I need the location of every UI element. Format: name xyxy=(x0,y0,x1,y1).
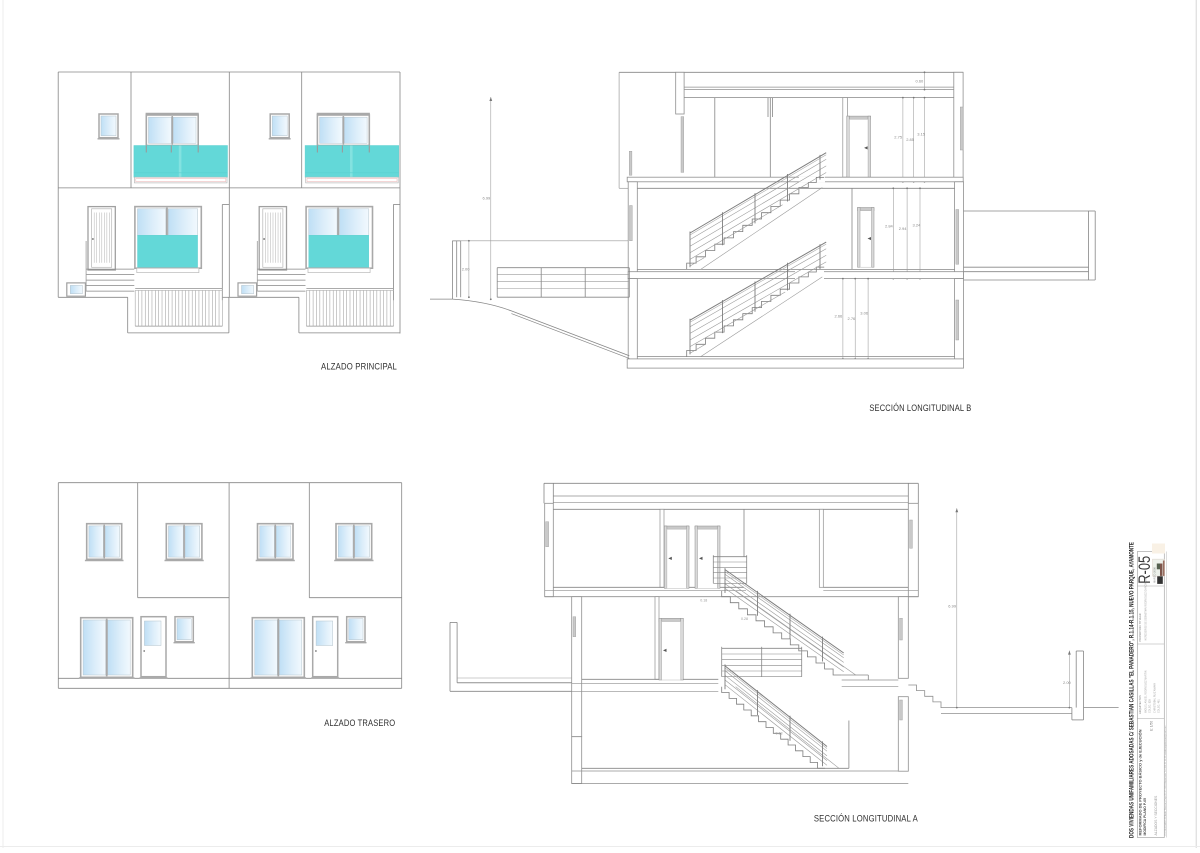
svg-text:2.75: 2.75 xyxy=(894,135,903,140)
svg-text:C/ COLEGIADO 28 Avda. Ramo: C/ COLEGIADO 28 Avda. Ramon y Cajal 23 1… xyxy=(1164,725,1167,835)
svg-text:2.84: 2.84 xyxy=(885,224,894,229)
svg-text:SECCIÓN LONGITUDINAL A: SECCIÓN LONGITUDINAL A xyxy=(814,814,918,824)
svg-text:MODIFICA PLANO P-05: MODIFICA PLANO P-05 xyxy=(1143,798,1147,836)
svg-text:2.00: 2.00 xyxy=(1063,680,1072,685)
svg-text:2.94: 2.94 xyxy=(899,226,908,231)
svg-text:DOS VIVIENDAS UNIFAMILIARES AD: DOS VIVIENDAS UNIFAMILIARES ADOSADAS C/ … xyxy=(1130,542,1136,838)
svg-text:2.00: 2.00 xyxy=(462,267,471,272)
svg-text:6.99: 6.99 xyxy=(948,604,957,609)
svg-text:PROMOTOR / TITULAR: PROMOTOR / TITULAR xyxy=(1138,613,1142,641)
svg-text:0.60: 0.60 xyxy=(916,79,925,84)
svg-text:2.76: 2.76 xyxy=(848,316,857,321)
svg-text:REFORMADO DE PROYECTO BÁSICO y: REFORMADO DE PROYECTO BÁSICO y de EJECUC… xyxy=(1138,729,1143,836)
svg-text:ALZADO PRINCIPAL: ALZADO PRINCIPAL xyxy=(321,362,397,372)
svg-text:CHRISTOBAL RUIZ AMAYA: CHRISTOBAL RUIZ AMAYA xyxy=(1154,683,1157,713)
svg-text:2.66: 2.66 xyxy=(835,314,844,319)
svg-text:COLEG. 528: COLEG. 528 xyxy=(1149,699,1152,713)
svg-text:MARZO 2006: MARZO 2006 xyxy=(1153,567,1157,583)
svg-text:3.24: 3.24 xyxy=(913,223,922,228)
svg-text:0.28: 0.28 xyxy=(741,617,748,621)
svg-text:3.06: 3.06 xyxy=(860,311,869,316)
svg-text:COLEG. 481: COLEG. 481 xyxy=(1158,699,1161,713)
svg-text:HEREDEROS DE SEBASTIAN RODRIGU: HEREDEROS DE SEBASTIAN RODRIGUEZ GARCIA … xyxy=(1145,577,1148,641)
svg-text:6.99: 6.99 xyxy=(483,196,492,201)
svg-text:ALZADO TRASERO: ALZADO TRASERO xyxy=(324,718,395,728)
svg-text:ARQUITECTOS: ARQUITECTOS xyxy=(1138,695,1142,714)
svg-text:3.15: 3.15 xyxy=(917,132,926,137)
svg-text:0.18: 0.18 xyxy=(700,599,707,603)
svg-text:MIGUEL ANGEL RODRIGUEZ MARTIN: MIGUEL ANGEL RODRIGUEZ MARTIN xyxy=(1145,670,1148,713)
svg-text:2.85: 2.85 xyxy=(906,137,915,142)
svg-text:SECCIÓN LONGITUDINAL B: SECCIÓN LONGITUDINAL B xyxy=(869,403,971,413)
svg-text:ALZADOS Y SECCIONES: ALZADOS Y SECCIONES xyxy=(1154,795,1158,836)
svg-text:0.18: 0.18 xyxy=(776,732,783,736)
svg-text:E: 1/50: E: 1/50 xyxy=(1149,721,1153,731)
